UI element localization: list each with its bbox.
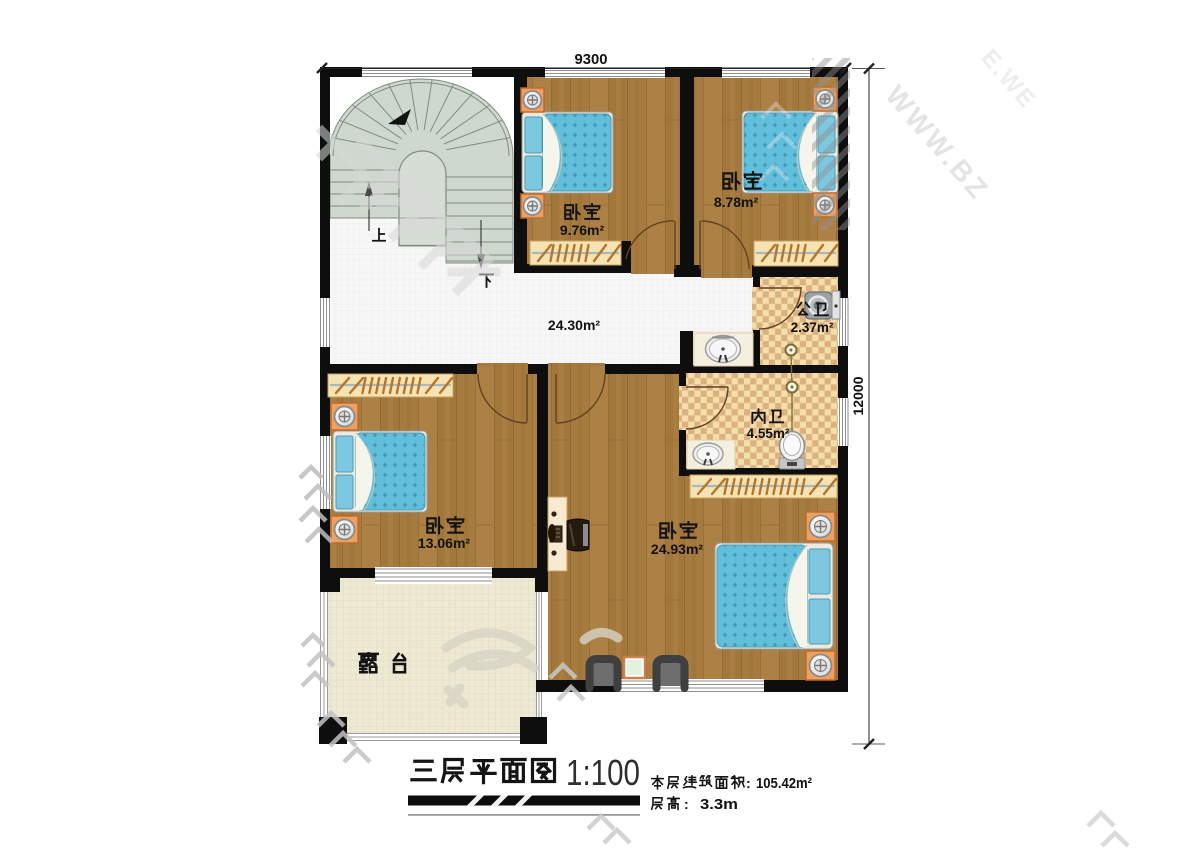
svg-text:105.42m²: 105.42m²: [756, 775, 812, 792]
svg-text:4.55m²: 4.55m²: [747, 426, 790, 441]
svg-text:2.37m²: 2.37m²: [791, 320, 834, 335]
svg-text:3.3m: 3.3m: [700, 796, 738, 813]
svg-text::: :: [684, 796, 689, 812]
svg-text:24.30m²: 24.30m²: [548, 317, 600, 333]
svg-text:24.93m²: 24.93m²: [651, 541, 703, 557]
svg-text:8.78m²: 8.78m²: [714, 194, 759, 210]
svg-text::: :: [746, 775, 751, 791]
svg-text:13.06m²: 13.06m²: [418, 535, 470, 551]
svg-text:9.76m²: 9.76m²: [560, 222, 605, 238]
svg-text:9300: 9300: [575, 51, 608, 68]
svg-text:1:100: 1:100: [566, 752, 640, 793]
svg-text:12000: 12000: [850, 376, 866, 415]
